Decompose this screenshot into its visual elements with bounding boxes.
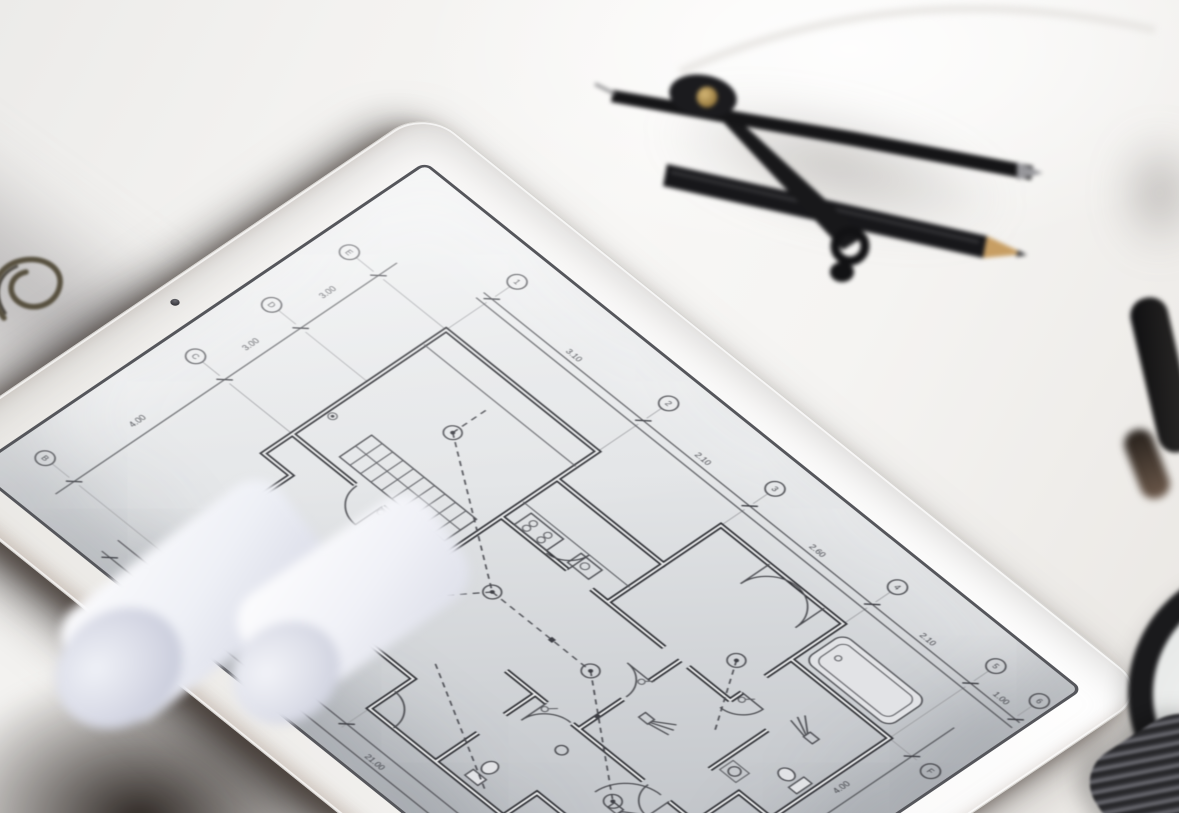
dim-label: 3.00 xyxy=(240,336,262,352)
dimension-chain-right: 4.00 4.00 F G H xyxy=(656,716,980,813)
grid-bubble-label: 2 xyxy=(663,400,674,408)
dim-label: 3.10 xyxy=(563,347,585,363)
grid-bubble-label: B xyxy=(39,454,51,463)
grid-bubble-label: E xyxy=(343,248,355,257)
dim-label: 3.00 xyxy=(317,284,339,300)
photo-scene: 3.00 3.00 4.00 E D C B xyxy=(0,0,1179,813)
grid-bubble-label: 5 xyxy=(990,662,1001,670)
dim-total-label: 21.00 xyxy=(362,752,387,771)
drafting-compass-and-pencil xyxy=(555,50,1065,295)
paperclip xyxy=(0,232,92,322)
grid-bubble-label: D xyxy=(265,301,277,310)
dim-label: 1.00 xyxy=(991,690,1013,706)
grid-bubble-label: 1 xyxy=(511,278,522,286)
dim-label: 2.10 xyxy=(917,631,939,647)
compass-brass-screw xyxy=(697,87,718,108)
dim-label: 2.10 xyxy=(692,451,714,467)
dim-label: 4.00 xyxy=(126,413,148,429)
front-camera xyxy=(168,297,181,307)
vent-symbols xyxy=(561,655,828,813)
dim-label: 4.00 xyxy=(831,779,853,795)
grid-bubble-label: 4 xyxy=(892,584,903,592)
grid-bubble-label: 3 xyxy=(769,485,780,493)
dim-label: 2.60 xyxy=(807,542,829,558)
grid-bubble-label: C xyxy=(189,352,201,361)
grid-bubble-label: 6 xyxy=(1033,697,1044,705)
grid-bubble-label: F xyxy=(924,767,935,775)
compass-knuckle xyxy=(835,231,865,261)
magnifier-shadow xyxy=(1112,118,1179,268)
compass-needle xyxy=(595,84,615,94)
